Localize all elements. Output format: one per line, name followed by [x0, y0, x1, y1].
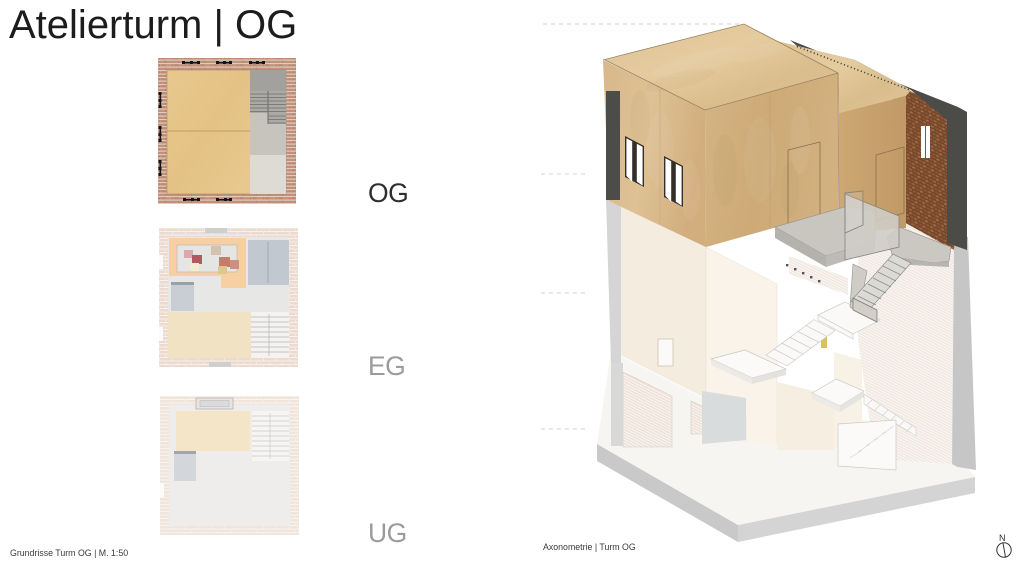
svg-text:UG: UG [368, 518, 407, 548]
svg-text:Axonometrie | Turm OG: Axonometrie | Turm OG [543, 542, 636, 552]
svg-text:OG: OG [368, 178, 408, 208]
svg-text:N: N [999, 533, 1006, 543]
svg-text:EG: EG [368, 351, 405, 381]
svg-text:Atelierturm | OG: Atelierturm | OG [9, 3, 297, 47]
svg-text:Grundrisse Turm OG | M. 1:50: Grundrisse Turm OG | M. 1:50 [10, 548, 128, 558]
